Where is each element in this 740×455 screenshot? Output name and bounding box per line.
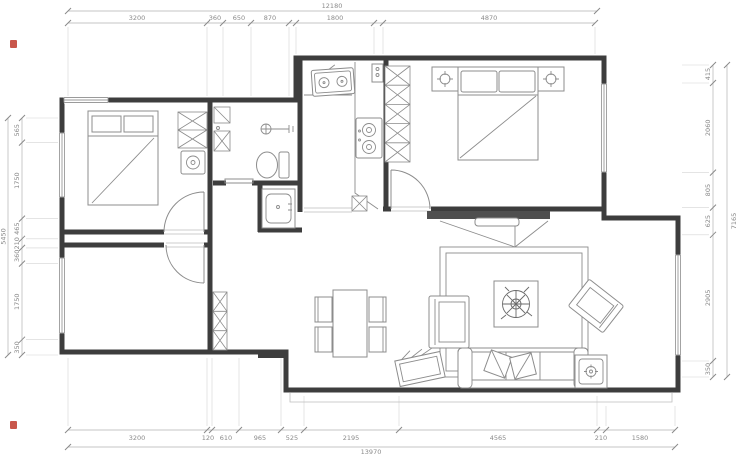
window-living-right xyxy=(674,255,683,355)
dim-left-seg: 465 xyxy=(13,222,21,234)
dining-chair xyxy=(369,297,386,322)
tv xyxy=(440,218,548,247)
dim-left-seg: 360 xyxy=(13,250,21,262)
wardrobe xyxy=(385,66,410,162)
dim-bottom-seg: 610 xyxy=(220,434,232,442)
window-bedroom1-top xyxy=(64,97,108,104)
dim-left-seg: 210 xyxy=(13,237,21,249)
cabinet-diagonal xyxy=(214,107,230,130)
floor-plan-drawing: 12180 3200 360 650 870 1800 4870 13970 3… xyxy=(0,0,740,455)
door-bedroom1 xyxy=(164,192,204,232)
dining-chair xyxy=(315,297,332,322)
dim-right-seg: 2905 xyxy=(704,290,712,307)
dim-top-seg: 360 xyxy=(209,14,221,22)
armchair-left xyxy=(429,296,469,348)
dim-left-seg: 565 xyxy=(13,124,21,136)
dim-top-seg: 4870 xyxy=(481,14,498,22)
dim-top-seg: 870 xyxy=(264,14,276,22)
dim-right-total: 7165 xyxy=(730,213,738,230)
kitchen-device xyxy=(372,64,383,82)
dim-left-seg: 1750 xyxy=(13,172,21,189)
dim-left-total: 5450 xyxy=(0,228,8,245)
dim-bottom-seg: 1580 xyxy=(632,434,649,442)
red-stamp-bottom xyxy=(10,421,17,429)
dim-bottom-seg: 120 xyxy=(202,434,214,442)
cabinet-x xyxy=(214,131,230,151)
side-table-lamp xyxy=(575,355,607,388)
kitchen-cabinet-x xyxy=(352,196,367,211)
floor-plan-page: 12180 3200 360 650 870 1800 4870 13970 3… xyxy=(0,0,740,455)
dim-top-total: 12180 xyxy=(322,2,343,10)
armchair-right xyxy=(568,279,624,333)
toilet xyxy=(257,152,290,178)
dim-bottom-seg: 4565 xyxy=(490,434,507,442)
dim-right-seg: 625 xyxy=(704,215,712,227)
dim-bottom-total: 13970 xyxy=(361,448,382,455)
window-master-right xyxy=(600,84,609,172)
dim-right-seg: 350 xyxy=(704,363,712,375)
living-room xyxy=(393,211,623,388)
dim-bottom-seg: 965 xyxy=(254,434,266,442)
dim-right-seg: 2060 xyxy=(704,120,712,137)
shower-head-icon xyxy=(261,124,293,134)
wardrobe xyxy=(178,112,207,148)
dim-bottom-seg: 525 xyxy=(286,434,298,442)
door-bathroom-sliding xyxy=(225,179,253,183)
corner-cabinet xyxy=(393,345,445,387)
red-stamp-top xyxy=(10,40,17,48)
dim-left-seg: 350 xyxy=(13,341,21,353)
nightstand-right xyxy=(538,67,564,91)
dim-right-seg: 805 xyxy=(704,184,712,196)
door-room2 xyxy=(166,245,204,283)
nightstand-left xyxy=(432,67,458,91)
bed xyxy=(88,111,158,205)
hall-cabinet-x xyxy=(213,292,227,350)
dim-top-seg: 650 xyxy=(233,14,245,22)
dining-chair xyxy=(369,327,386,352)
dining-table xyxy=(333,290,367,357)
stove xyxy=(356,118,382,158)
dim-bottom-seg: 2195 xyxy=(343,434,360,442)
dining-area xyxy=(315,290,386,357)
dim-left-seg: 1750 xyxy=(13,293,21,310)
hallway xyxy=(213,189,295,350)
dim-bottom-seg: 3200 xyxy=(129,434,146,442)
dim-top-seg: 3200 xyxy=(129,14,146,22)
dim-top-seg: 1800 xyxy=(327,14,344,22)
window-room2-left xyxy=(59,258,66,333)
kitchen xyxy=(304,62,383,211)
dimension-chains xyxy=(5,8,730,450)
bed xyxy=(458,67,538,160)
master-bedroom xyxy=(385,66,564,162)
window-bedroom1-left xyxy=(59,133,66,197)
vanity-sink xyxy=(262,189,295,228)
dimension-labels: 12180 3200 360 650 870 1800 4870 13970 3… xyxy=(0,2,738,455)
bathroom xyxy=(214,107,293,178)
washing-machine xyxy=(181,151,205,174)
sofa xyxy=(458,348,588,388)
dining-chair xyxy=(315,327,332,352)
dim-bottom-seg: 210 xyxy=(595,434,607,442)
balcony-edge xyxy=(290,393,672,402)
door-master-bedroom xyxy=(391,170,430,209)
dim-right-seg: 415 xyxy=(704,68,712,80)
bedroom1 xyxy=(88,111,207,205)
kitchen-sink xyxy=(311,64,355,97)
